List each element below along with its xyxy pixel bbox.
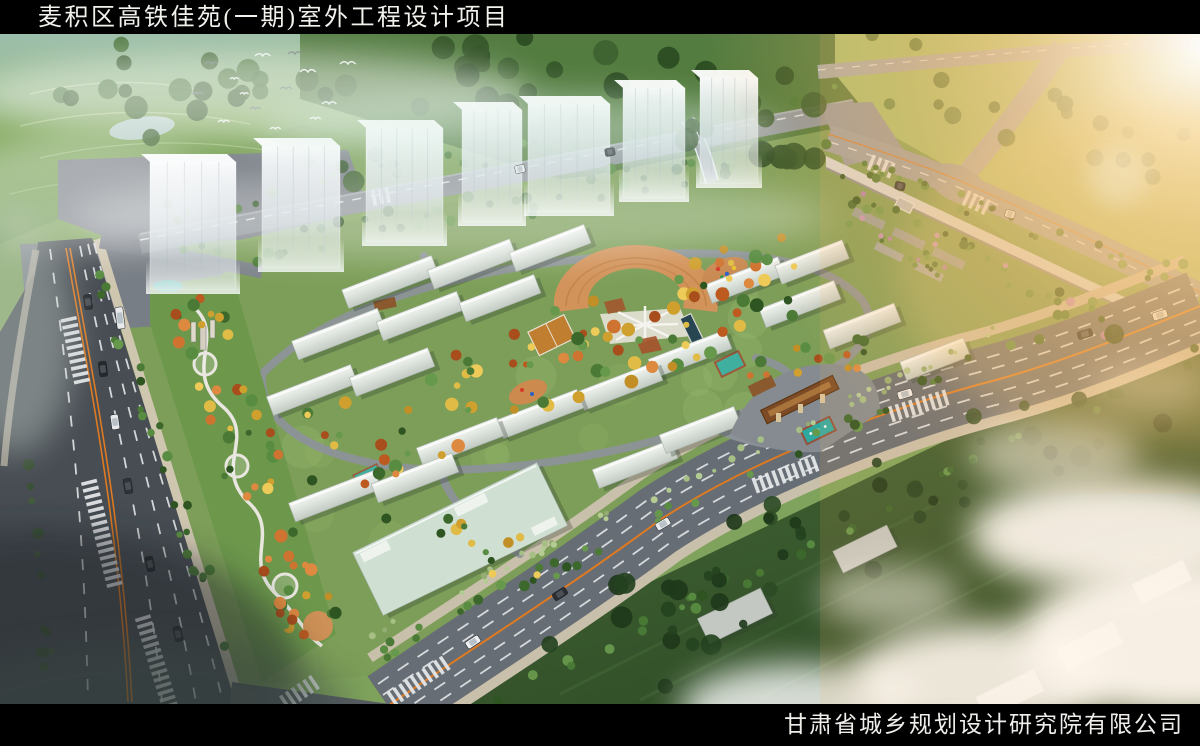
car — [98, 361, 108, 377]
design-institute-name: 甘肃省城乡规划设计研究院有限公司 — [0, 704, 1200, 746]
title-bar: 麦积区高铁佳苑(一期)室外工程设计项目 — [0, 0, 1200, 34]
car — [514, 164, 525, 174]
car — [83, 294, 93, 310]
aerial-rendering — [0, 34, 1200, 704]
car — [110, 414, 120, 430]
credit-bar: 甘肃省城乡规划设计研究院有限公司 — [0, 704, 1200, 746]
rendering-board: 麦积区高铁佳苑(一期)室外工程设计项目 — [0, 0, 1200, 746]
project-title: 麦积区高铁佳苑(一期)室外工程设计项目 — [0, 0, 1200, 36]
